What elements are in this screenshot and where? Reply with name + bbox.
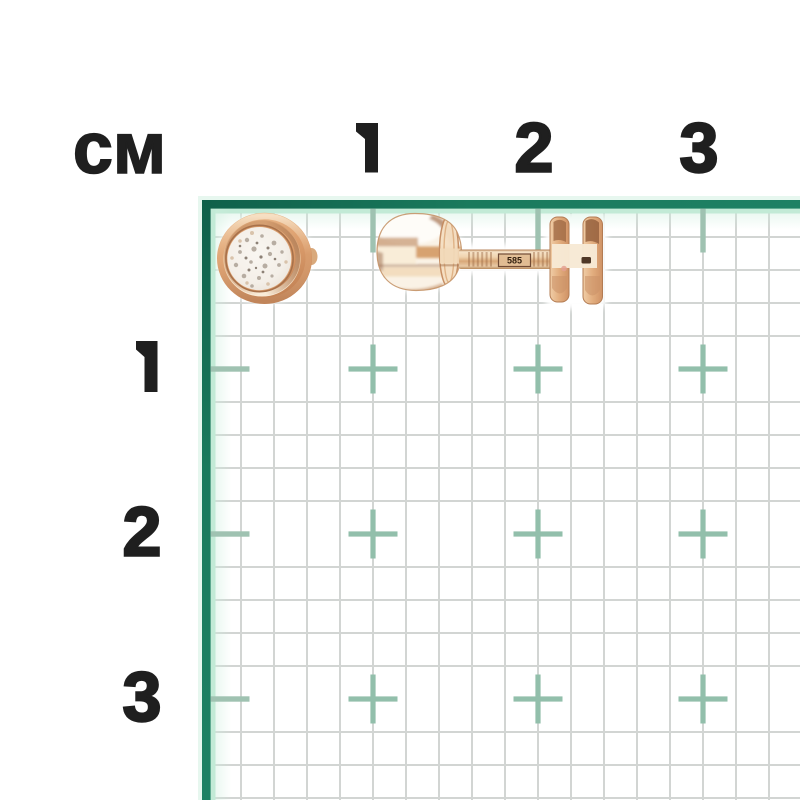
svg-text:см: см: [73, 109, 166, 189]
svg-text:585: 585: [507, 256, 522, 266]
svg-text:2: 2: [515, 109, 554, 187]
svg-text:2: 2: [123, 493, 162, 571]
svg-text:3: 3: [123, 658, 162, 736]
svg-text:3: 3: [680, 109, 719, 187]
